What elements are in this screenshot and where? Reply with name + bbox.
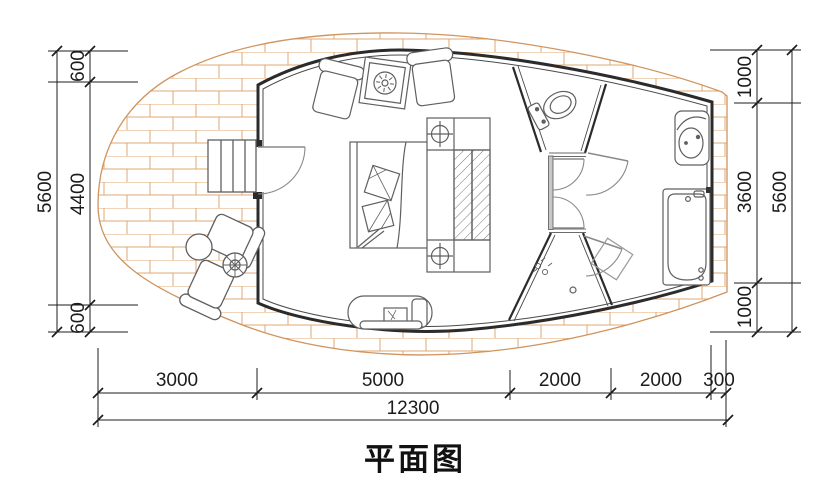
dim-label: 12300 bbox=[387, 398, 440, 419]
plant-pot-icon bbox=[223, 253, 247, 277]
dim-label: 5600 bbox=[35, 171, 56, 213]
dim-label: 3000 bbox=[156, 370, 198, 391]
page-title: 平面图 bbox=[364, 442, 466, 477]
wall-cap bbox=[253, 192, 262, 199]
dim-label: 1000 bbox=[735, 56, 756, 98]
dim-label: 4400 bbox=[68, 173, 89, 215]
dim-label: 3600 bbox=[735, 171, 756, 213]
floor-plan-drawing: 600 4400 600 5600 1000 3600 1000 5600 30… bbox=[0, 0, 837, 496]
floor-plan-page: 600 4400 600 5600 1000 3600 1000 5600 30… bbox=[0, 0, 837, 496]
dim-label: 5000 bbox=[362, 370, 404, 391]
dim-label: 600 bbox=[68, 302, 89, 334]
side-table-icon bbox=[359, 57, 411, 109]
dim-label: 300 bbox=[703, 370, 735, 391]
dim-label: 2000 bbox=[539, 370, 581, 391]
lobby-partition-wall bbox=[549, 156, 554, 230]
bathtub-icon bbox=[663, 189, 710, 285]
round-table-icon bbox=[186, 234, 212, 260]
entry-stairs-icon bbox=[208, 140, 256, 192]
dim-label: 5600 bbox=[770, 171, 791, 213]
washbasin-icon bbox=[675, 111, 709, 165]
dim-label: 1000 bbox=[735, 286, 756, 328]
dim-label: 2000 bbox=[640, 370, 682, 391]
dim-label: 600 bbox=[68, 50, 89, 82]
pillow-icon bbox=[362, 200, 394, 232]
wardrobe-icon bbox=[427, 118, 490, 272]
wall-fixture bbox=[706, 187, 712, 193]
bench-icon bbox=[348, 296, 432, 329]
